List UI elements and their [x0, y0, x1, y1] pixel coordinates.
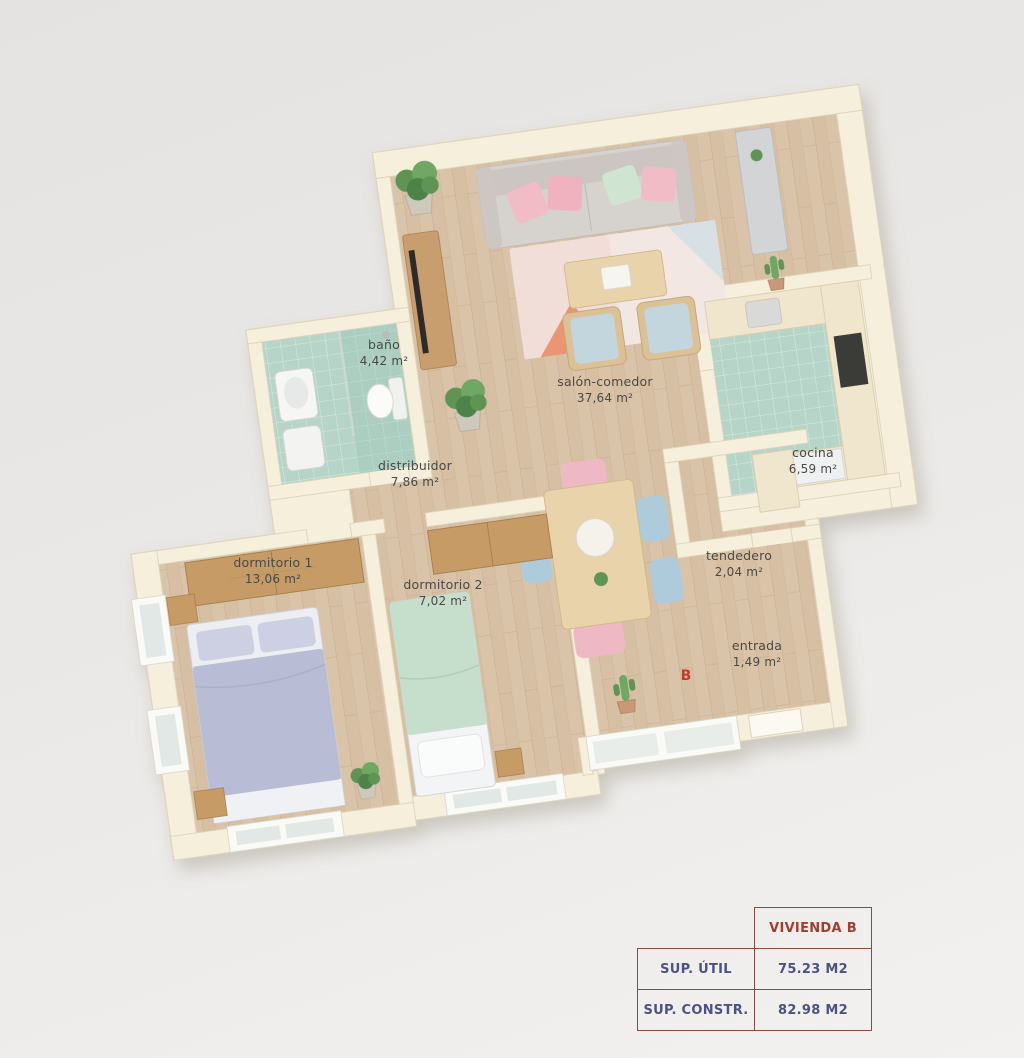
room-label-entrada: entrada 1,49 m²: [732, 638, 782, 670]
room-label-tendedero: tendedero 2,04 m²: [706, 548, 772, 580]
room-label-dormitorio-2: dormitorio 2 7,02 m²: [403, 577, 482, 609]
armchair: [636, 295, 702, 361]
sup-constr-value: 82.98 M2: [755, 990, 872, 1031]
nightstand: [194, 788, 228, 820]
room-label-distribuidor: distribuidor 7,86 m²: [378, 458, 452, 490]
room-label-cocina: cocina 6,59 m²: [789, 445, 837, 477]
surface-info-table: VIVIENDA B SUP. ÚTIL 75.23 M2 SUP. CONST…: [637, 907, 872, 1031]
room-label-dormitorio-1: dormitorio 1 13,06 m²: [233, 555, 312, 587]
nightstand: [166, 594, 198, 626]
room-label-bano: baño 4,42 m²: [360, 337, 408, 369]
empty-cell: [638, 908, 755, 949]
floor-plan-rendering: [0, 0, 1024, 1058]
dining-chair-blue: [649, 556, 685, 605]
room-label-salon-comedor: salón-comedor 37,64 m²: [557, 374, 652, 406]
unit-b-marker: B: [681, 668, 692, 684]
floor-plan-page: salón-comedor 37,64 m² baño 4,42 m² dist…: [0, 0, 1024, 1058]
table-header-row: VIVIENDA B: [638, 908, 872, 949]
table-row: SUP. ÚTIL 75.23 M2: [638, 949, 872, 990]
armchair: [562, 306, 628, 372]
pillow-pink: [640, 166, 676, 202]
kitchen-sink: [745, 298, 782, 328]
pillow-pink: [547, 176, 582, 211]
table-header-vivienda: VIVIENDA B: [755, 908, 872, 949]
sup-util-value: 75.23 M2: [755, 949, 872, 990]
sup-constr-label: SUP. CONSTR.: [638, 990, 755, 1031]
sup-util-label: SUP. ÚTIL: [638, 949, 755, 990]
bidet: [282, 425, 325, 472]
table-row: SUP. CONSTR. 82.98 M2: [638, 990, 872, 1031]
nightstand: [495, 748, 524, 777]
